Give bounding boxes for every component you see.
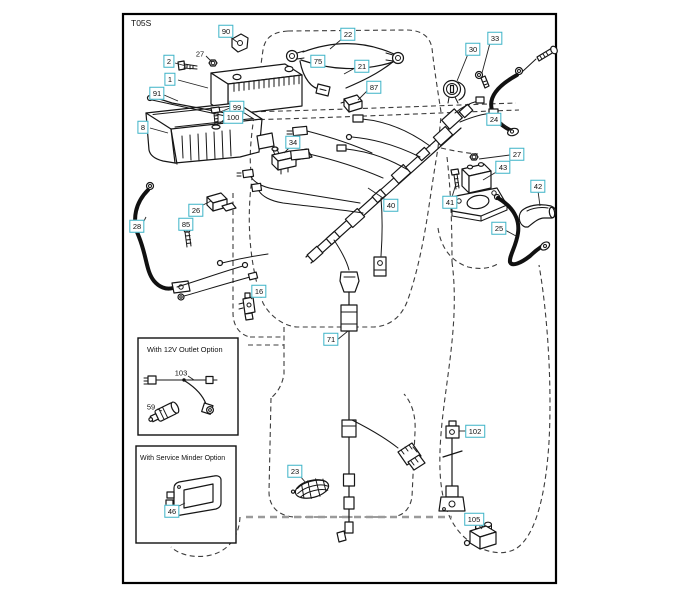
callout-75: 75 [310, 55, 325, 68]
callout-22: 22 [340, 28, 355, 41]
callout-28: 28 [129, 220, 144, 233]
callout-90: 90 [218, 25, 233, 38]
callout-41: 41 [442, 196, 457, 209]
callout-102: 102 [465, 425, 485, 438]
callout-46: 46 [164, 505, 179, 518]
parts-diagram-page: T05S [0, 0, 688, 600]
callout-27: 27 [196, 50, 204, 58]
callout-40: 40 [383, 199, 398, 212]
callout-33: 33 [487, 32, 502, 45]
callout-34: 34 [285, 136, 300, 149]
callout-2: 2 [163, 55, 174, 68]
callout-85: 85 [178, 218, 193, 231]
callout-59: 59 [147, 403, 155, 411]
callout-43: 43 [495, 161, 510, 174]
callout-100: 100 [223, 111, 243, 124]
callout-91: 91 [149, 87, 164, 100]
callout-8: 8 [137, 121, 148, 134]
callout-layer: 9022719199100822752187333024274341422526… [0, 0, 688, 600]
callout-23: 23 [287, 465, 302, 478]
callout-87: 87 [366, 81, 381, 94]
callout-25: 25 [491, 222, 506, 235]
callout-103: 103 [175, 369, 188, 377]
callout-71: 71 [323, 333, 338, 346]
callout-30: 30 [465, 43, 480, 56]
callout-21: 21 [354, 60, 369, 73]
callout-42: 42 [530, 180, 545, 193]
callout-1: 1 [164, 73, 175, 86]
callout-24: 24 [486, 113, 501, 126]
callout-27: 27 [509, 148, 524, 161]
callout-26: 26 [188, 204, 203, 217]
callout-105: 105 [464, 513, 484, 526]
callout-16: 16 [251, 285, 266, 298]
